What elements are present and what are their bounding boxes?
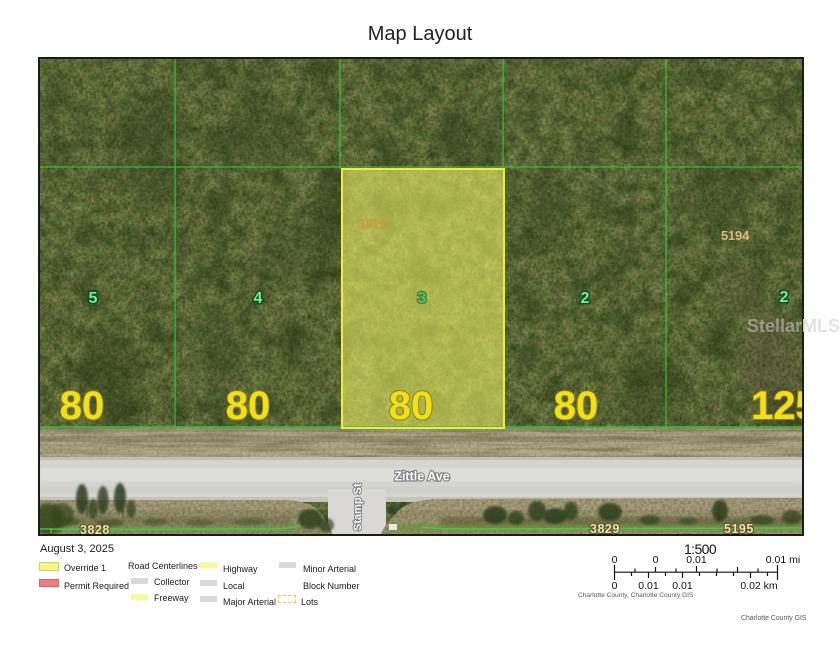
svg-text:0: 0 (612, 580, 618, 592)
svg-text:5194: 5194 (721, 228, 750, 243)
svg-text:5195: 5195 (724, 522, 754, 534)
svg-text:Stamp St: Stamp St (352, 483, 364, 531)
svg-text:80: 80 (554, 384, 599, 428)
svg-text:0.01: 0.01 (686, 554, 707, 566)
svg-text:Zittle Ave: Zittle Ave (394, 470, 449, 484)
svg-text:3819: 3819 (358, 217, 387, 231)
svg-text:0.02 km: 0.02 km (740, 580, 778, 592)
svg-text:125: 125 (751, 384, 802, 428)
svg-text:2: 2 (780, 289, 789, 306)
svg-text:80: 80 (226, 384, 271, 428)
svg-text:3: 3 (418, 290, 427, 307)
svg-text:5: 5 (89, 290, 98, 307)
svg-text:80: 80 (389, 384, 434, 428)
svg-text:2: 2 (581, 290, 590, 307)
svg-text:0.01: 0.01 (638, 580, 659, 592)
svg-text:0.01: 0.01 (672, 580, 693, 592)
svg-text:3828: 3828 (80, 523, 110, 534)
svg-text:3829: 3829 (590, 522, 620, 534)
svg-text:80: 80 (60, 384, 105, 428)
svg-text:0.01 mi: 0.01 mi (766, 554, 800, 566)
svg-text:0: 0 (653, 554, 659, 566)
svg-text:0: 0 (612, 554, 618, 566)
svg-text:4: 4 (254, 290, 263, 307)
